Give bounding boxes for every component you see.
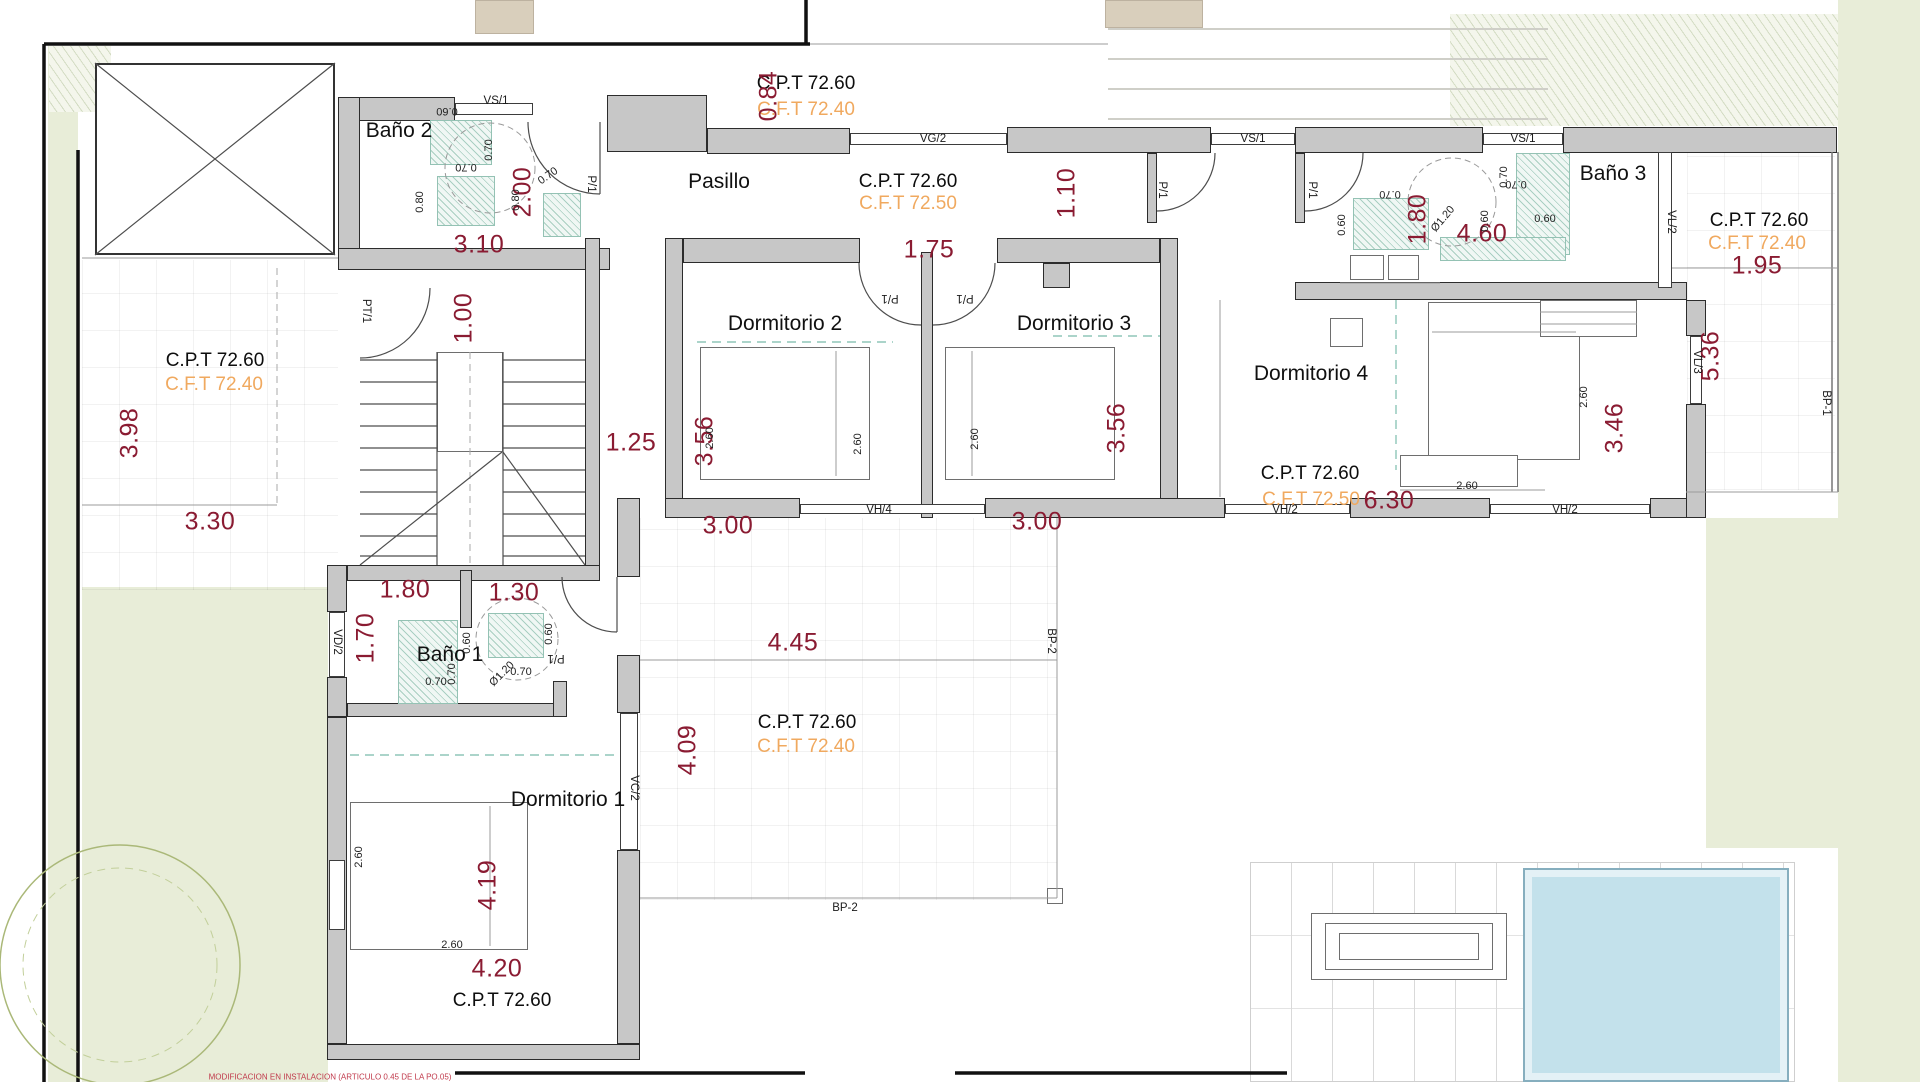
dimension-label-small: 0.60 <box>436 105 457 117</box>
wall <box>921 252 933 518</box>
dimension-label-small: 0.60 <box>1534 213 1555 225</box>
terrace-grid-right <box>1687 150 1835 490</box>
component-tag: VG/2 <box>920 133 946 145</box>
wall <box>1686 404 1706 518</box>
component-tag: P/1 <box>1156 181 1168 198</box>
sink <box>1350 255 1384 280</box>
garden-bottom-left <box>82 587 328 1082</box>
elevation-label: C.F.T 72.40 <box>165 374 263 396</box>
garden-mid-right <box>1706 518 1838 848</box>
floor-plan: Baño 2PasilloBaño 3Dormitorio 2Dormitori… <box>0 0 1920 1082</box>
dimension-label-small: 2.60 <box>1456 480 1477 492</box>
dimension-label: 1.80 <box>1404 194 1433 245</box>
dimension-label: 6.30 <box>1364 487 1415 516</box>
dashed-area-top <box>1108 28 1548 120</box>
dimension-label: 1.80 <box>380 576 431 605</box>
elevation-label: C.P.T 72.60 <box>758 712 857 734</box>
dimension-label: 1.70 <box>352 613 381 664</box>
dimension-label: 4.20 <box>472 955 523 984</box>
dimension-label: 1.75 <box>904 236 955 265</box>
component-tag: VD/2 <box>331 629 343 655</box>
component-tag: VS/1 <box>484 95 509 107</box>
elevation-label: C.P.T 72.60 <box>453 990 552 1012</box>
wall <box>1295 282 1687 300</box>
wall <box>327 565 347 612</box>
wall <box>1007 127 1211 153</box>
wall <box>683 238 860 263</box>
plan-line <box>503 452 585 565</box>
window-vh4 <box>800 504 985 514</box>
dimension-label: 1.30 <box>489 579 540 608</box>
site-block-top-1 <box>475 0 534 34</box>
component-tag: VC/2 <box>628 775 640 801</box>
shower-hatch <box>437 176 495 226</box>
dimension-label-small: 0.80 <box>414 191 426 212</box>
dimension-label-small: 0.60 <box>1479 210 1491 231</box>
dimension-label-small: 0.80 <box>510 189 522 210</box>
wall <box>1295 127 1483 153</box>
dimension-label-small: 0.60 <box>543 623 555 644</box>
room-label: Dormitorio 3 <box>1017 312 1131 336</box>
outdoor-steps <box>1540 300 1637 337</box>
wall <box>607 95 707 152</box>
skylight-box <box>95 63 335 255</box>
elevation-label: C.F.T 72.50 <box>859 193 957 215</box>
room-label: Dormitorio 4 <box>1254 362 1368 386</box>
dimension-label-small: 0.70 <box>425 676 446 688</box>
component-tag: P/1 <box>881 292 898 304</box>
dimension-label: 4.45 <box>768 629 819 658</box>
nightstand <box>1330 318 1363 347</box>
dimension-label: 0.84 <box>755 71 784 122</box>
dimension-label: 3.56 <box>1103 403 1132 454</box>
terrace-grid-bottom <box>640 518 1057 900</box>
wall <box>1295 153 1305 223</box>
dimension-label: 3.00 <box>703 512 754 541</box>
elevation-label: C.F.T 72.40 <box>757 736 855 758</box>
sink <box>1388 255 1419 280</box>
component-tag: VL/3 <box>1691 350 1703 374</box>
elevation-label: C.P.T 72.60 <box>1710 210 1809 232</box>
component-tag: P/1 <box>956 292 973 304</box>
stair-void <box>437 352 503 452</box>
plan-line <box>360 452 502 565</box>
dimension-label: 3.98 <box>116 408 145 459</box>
corner-mark <box>1047 888 1063 904</box>
room-label: Baño 3 <box>1580 162 1647 186</box>
dimension-label: 1.95 <box>1732 252 1783 281</box>
component-tag: VS/1 <box>1241 133 1266 145</box>
wall <box>617 655 640 713</box>
dimension-label: 1.00 <box>450 293 479 344</box>
component-tag: VL/2 <box>1665 210 1677 234</box>
wall <box>347 703 563 717</box>
room-label: Pasillo <box>688 170 750 194</box>
dimension-label-small: 0.70 <box>1505 178 1526 190</box>
dimension-label-small: 0.70 <box>510 666 531 678</box>
component-tag: VH/2 <box>1552 504 1578 516</box>
wall <box>327 1044 640 1060</box>
component-tag: PT/1 <box>360 299 372 323</box>
wall <box>665 238 683 518</box>
wall <box>997 238 1160 263</box>
component-tag: VH/4 <box>866 504 892 516</box>
dimension-label-small: 2.60 <box>969 428 981 449</box>
pool <box>1523 868 1789 1082</box>
wall <box>1563 127 1837 153</box>
shower-hatch <box>543 193 581 237</box>
room-label: Baño 2 <box>366 119 433 143</box>
dimension-label-small: 2.60 <box>353 846 365 867</box>
component-tag: BP-2 <box>832 902 858 914</box>
dimension-label-small: 0.70 <box>455 161 476 173</box>
elevation-label: C.P.T 72.60 <box>1261 463 1360 485</box>
wall <box>707 128 850 154</box>
component-tag: P/1 <box>547 652 564 664</box>
site-block-top-2 <box>1105 0 1203 28</box>
room-label: Dormitorio 2 <box>728 312 842 336</box>
plan-note: MODIFICACION EN INSTALACION (ARTICULO 0.… <box>209 1073 452 1082</box>
dimension-label: 3.10 <box>454 231 505 260</box>
component-tag: BP-1 <box>1820 390 1832 416</box>
dimension-label: 1.25 <box>606 429 657 458</box>
duct <box>1043 263 1070 288</box>
elevation-label: C.P.T 72.60 <box>166 350 265 372</box>
dimension-label: 3.00 <box>1012 508 1063 537</box>
room-label: Dormitorio 1 <box>511 788 625 812</box>
dimension-label: 1.10 <box>1053 168 1082 219</box>
wall <box>1160 238 1178 518</box>
dimension-label: 3.30 <box>185 508 236 537</box>
bed-dormitorio-2 <box>700 347 870 480</box>
shower-hatch <box>488 613 544 658</box>
component-tag: P/1 <box>1306 181 1318 198</box>
dimension-label-small: 0.70 <box>1379 188 1400 200</box>
dimension-label-small: Ø1.20 <box>1429 204 1457 235</box>
component-tag: VH/2 <box>1272 504 1298 516</box>
dimension-label: 4.09 <box>674 725 703 776</box>
dimension-label-small: 0.70 <box>536 165 560 187</box>
dimension-label: 4.19 <box>474 860 503 911</box>
dimension-label-small: 2.60 <box>852 433 864 454</box>
garden-left-strip <box>48 46 78 1082</box>
door-swing-dorm1 <box>562 577 617 632</box>
dimension-label-small: 2.60 <box>441 939 462 951</box>
dimension-label-small: 2.60 <box>704 427 716 448</box>
window-d1-west <box>329 860 345 930</box>
wall <box>327 677 347 717</box>
bed-dormitorio-3 <box>945 347 1115 480</box>
garden-right-column <box>1838 0 1920 1082</box>
dimension-label-small: 0.60 <box>1336 214 1348 235</box>
wall <box>617 498 640 577</box>
dimension-label-small: 2.60 <box>1578 386 1590 407</box>
elevation-label: C.P.T 72.60 <box>859 171 958 193</box>
dimension-label: 3.46 <box>1601 403 1630 454</box>
component-tag: VS/1 <box>1511 133 1536 145</box>
wall <box>585 238 600 577</box>
dimension-label-small: 0.70 <box>483 139 495 160</box>
spa-core <box>1339 933 1479 960</box>
component-tag: BP-2 <box>1045 628 1057 654</box>
wall <box>617 850 640 1044</box>
dimension-label-small: 0.60 <box>461 632 473 653</box>
wall <box>553 681 567 717</box>
wall <box>338 97 360 270</box>
dimension-label-small: 0.70 <box>446 663 458 684</box>
component-tag: P/1 <box>585 175 597 192</box>
wall <box>460 570 472 628</box>
